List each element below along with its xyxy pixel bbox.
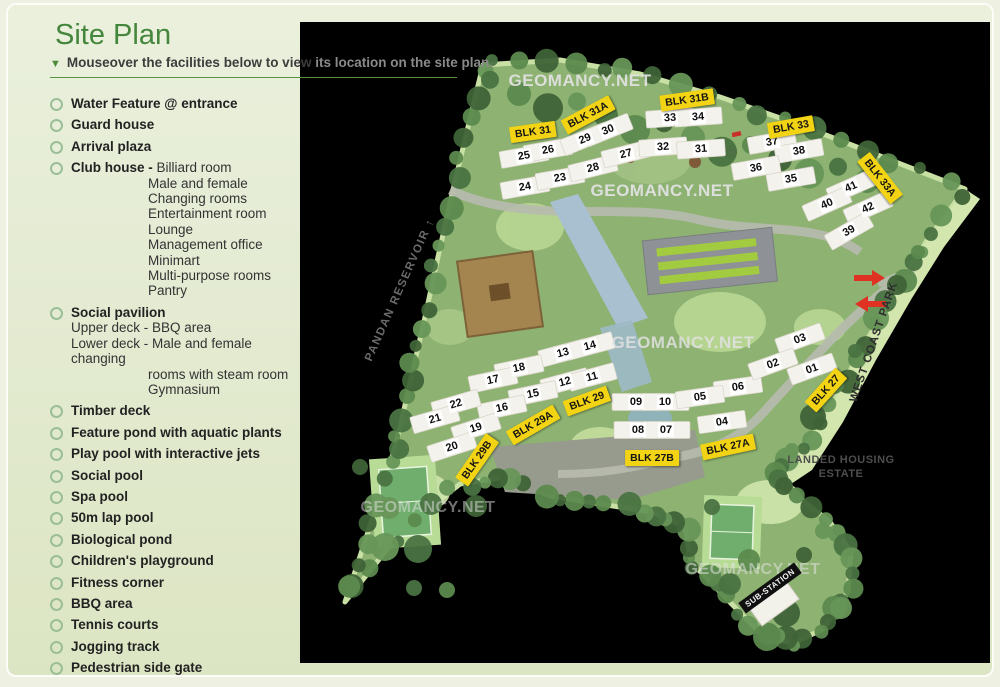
facility-detail: Pantry: [148, 283, 271, 298]
facility-bullet-icon: [50, 641, 63, 654]
facility-item[interactable]: Spa pool: [50, 489, 310, 504]
facility-bullet-icon: [50, 512, 63, 525]
block-label: BLK 27B: [625, 450, 679, 466]
unit-number: 34: [689, 109, 706, 124]
facility-label: Club house -: [71, 160, 153, 175]
landed-housing-line2: ESTATE: [787, 467, 894, 481]
facility-text: Fitness corner: [71, 575, 164, 590]
unit-number: 23: [551, 170, 569, 187]
facility-label: Pedestrian side gate: [71, 660, 202, 675]
facility-item[interactable]: Timber deck: [50, 403, 310, 418]
facility-text: Feature pond with aquatic plants: [71, 425, 282, 440]
landed-housing-line1: LANDED HOUSING: [787, 453, 894, 467]
facility-detail: Gymnasium: [148, 382, 310, 397]
facility-item[interactable]: Fitness corner: [50, 575, 310, 590]
facility-text: 50m lap pool: [71, 510, 154, 525]
facility-text: Water Feature @ entrance: [71, 96, 237, 111]
facility-label: Water Feature @ entrance: [71, 96, 237, 111]
facility-detail: Changing rooms: [148, 191, 271, 206]
facility-detail: Entertainment room: [148, 206, 271, 221]
facility-item[interactable]: 50m lap pool: [50, 510, 310, 525]
facility-item[interactable]: Social pool: [50, 468, 310, 483]
facility-label: Timber deck: [71, 403, 150, 418]
facility-text: Spa pool: [71, 489, 128, 504]
facility-bullet-icon: [50, 141, 63, 154]
watermark: GEOMANCY.NET: [591, 181, 734, 201]
site-plan-map: 2526242329302827333432313738363541404239…: [300, 22, 990, 663]
unit-number: 33: [661, 110, 678, 125]
facility-label: Play pool with interactive jets: [71, 446, 260, 461]
facility-bullet-icon: [50, 491, 63, 504]
facility-text: Children's playground: [71, 553, 214, 568]
facility-bullet-icon: [50, 119, 63, 132]
facility-text: Arrival plaza: [71, 139, 151, 154]
facility-text: Tennis courts: [71, 617, 159, 632]
header-divider: [50, 77, 457, 78]
facility-item[interactable]: Feature pond with aquatic plants: [50, 425, 310, 440]
timber-deck: [457, 251, 543, 337]
facility-text: Timber deck: [71, 403, 150, 418]
unit-number: 06: [729, 379, 747, 395]
subtitle-text-back: its location on the site plan.: [315, 55, 493, 70]
facility-detail: Male and female: [148, 176, 271, 191]
facility-item[interactable]: Social pavilionUpper deck - BBQ areaLowe…: [50, 305, 310, 397]
facility-item[interactable]: Water Feature @ entrance: [50, 96, 310, 111]
facility-text: Social pool: [71, 468, 143, 483]
facility-list: Water Feature @ entranceGuard houseArriv…: [50, 96, 310, 682]
facility-bullet-icon: [50, 470, 63, 483]
page-subtitle: ▼Mouseover the facilities below to view …: [50, 55, 493, 70]
triangle-marker-icon: ▼: [50, 58, 61, 70]
unit-number: 25: [515, 148, 533, 165]
unit-number: 36: [747, 160, 765, 177]
facility-label: Arrival plaza: [71, 139, 151, 154]
facility-label: Fitness corner: [71, 575, 164, 590]
facility-detail: Lounge: [148, 222, 271, 237]
landed-housing-estate-label: LANDED HOUSING ESTATE: [787, 453, 894, 481]
page-title: Site Plan: [55, 19, 171, 52]
facility-item[interactable]: Biological pond: [50, 532, 310, 547]
facility-label: Tennis courts: [71, 617, 159, 632]
facility-bullet-icon: [50, 577, 63, 590]
facility-subline: Lower deck - Male and female changing: [71, 336, 310, 367]
unit-number: 32: [654, 139, 671, 154]
facility-bullet-icon: [50, 162, 63, 175]
facility-item[interactable]: Play pool with interactive jets: [50, 446, 310, 461]
facility-bullet-icon: [50, 98, 63, 111]
unit-number: 31: [692, 141, 709, 156]
facility-bullet-icon: [50, 534, 63, 547]
facility-item[interactable]: Tennis courts: [50, 617, 310, 632]
facility-item[interactable]: Children's playground: [50, 553, 310, 568]
watermark: GEOMANCY.NET: [509, 71, 652, 91]
unit-number: 38: [790, 143, 808, 160]
facility-detail: Management office: [148, 237, 271, 252]
facility-text: Pedestrian side gate: [71, 660, 202, 675]
facility-bullet-icon: [50, 662, 63, 675]
unit-number: 24: [516, 179, 534, 196]
facility-text: Biological pond: [71, 532, 172, 547]
facility-label: Social pool: [71, 468, 143, 483]
facility-item[interactable]: BBQ area: [50, 596, 310, 611]
subtitle-text-front: Mouseover the facilities below to view: [67, 55, 315, 70]
facility-item[interactable]: Jogging track: [50, 639, 310, 654]
facility-bullet-icon: [50, 598, 63, 611]
facility-text: BBQ area: [71, 596, 133, 611]
unit-number: 10: [657, 395, 673, 409]
unit-number: 05: [691, 389, 709, 405]
unit-number: 35: [782, 171, 800, 188]
facility-bullet-icon: [50, 405, 63, 418]
facility-item[interactable]: Guard house: [50, 117, 310, 132]
facility-bullet-icon: [50, 427, 63, 440]
facility-item[interactable]: Club house - Billiard roomMale and femal…: [50, 160, 310, 299]
watermark: GEOMANCY.NET: [612, 333, 755, 353]
unit-number: 04: [713, 414, 731, 430]
unit-number: 08: [630, 423, 646, 437]
facility-label: BBQ area: [71, 596, 133, 611]
unit-number: 26: [539, 142, 557, 159]
unit-number: 07: [658, 423, 674, 437]
facility-detail: Multi-purpose rooms: [148, 268, 271, 283]
facility-label: Biological pond: [71, 532, 172, 547]
facility-label: Guard house: [71, 117, 154, 132]
facility-bullet-icon: [50, 555, 63, 568]
watermark: GEOMANCY.NET: [361, 499, 496, 517]
facility-label: Social pavilion: [71, 305, 166, 320]
facility-text: Guard house: [71, 117, 154, 132]
facility-bullet-icon: [50, 448, 63, 461]
facility-label: Children's playground: [71, 553, 214, 568]
facility-bullet-icon: [50, 307, 63, 320]
facility-label: 50m lap pool: [71, 510, 154, 525]
facility-text: Social pavilionUpper deck - BBQ areaLowe…: [71, 305, 310, 397]
facility-subline: Upper deck - BBQ area: [71, 320, 310, 335]
facility-text: Play pool with interactive jets: [71, 446, 260, 461]
facility-detail: Minimart: [148, 253, 271, 268]
facility-item[interactable]: Pedestrian side gate: [50, 660, 310, 675]
unit-number: 09: [628, 395, 644, 409]
facility-detail: rooms with steam room: [148, 367, 310, 382]
facility-text: Club house - Billiard roomMale and femal…: [71, 160, 271, 299]
facility-bullet-icon: [50, 619, 63, 632]
facility-label: Feature pond with aquatic plants: [71, 425, 282, 440]
facility-text: Jogging track: [71, 639, 160, 654]
facility-item[interactable]: Arrival plaza: [50, 139, 310, 154]
facility-label: Jogging track: [71, 639, 160, 654]
facility-label: Spa pool: [71, 489, 128, 504]
facility-inline-detail: Billiard room: [153, 160, 232, 175]
